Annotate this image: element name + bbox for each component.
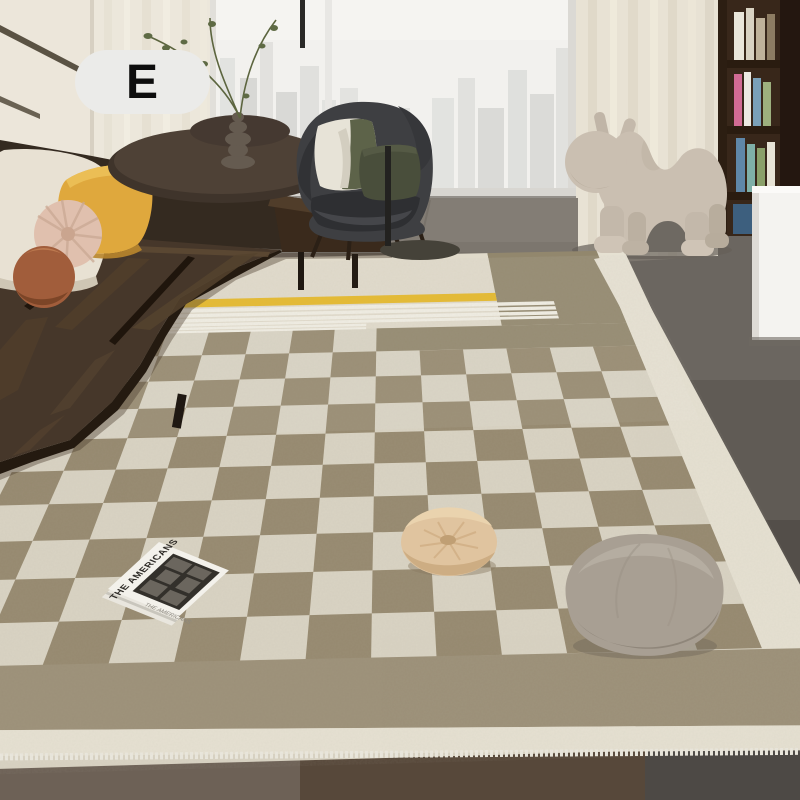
svg-text:E: E bbox=[126, 56, 158, 109]
